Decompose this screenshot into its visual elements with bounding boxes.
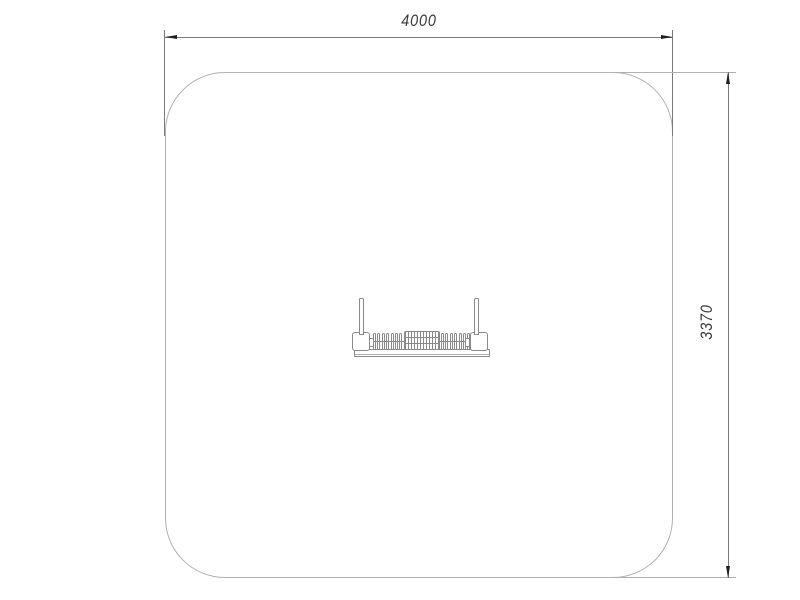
equipment-plan-view (352, 296, 492, 358)
extension-line-right (672, 30, 673, 136)
spring-coil (391, 333, 394, 349)
spring-coil (459, 333, 462, 349)
dimension-arrow-right-icon (661, 35, 673, 39)
extension-line-bottom (612, 577, 736, 578)
extension-line-left (164, 30, 165, 136)
equipment-post-right (474, 298, 479, 335)
equipment-ribbed-seat (404, 331, 440, 349)
spring-coil (450, 333, 453, 349)
height-dimension-label: 3370 (696, 292, 718, 352)
seat-cross-line (405, 337, 439, 338)
width-dimension-line (165, 37, 673, 38)
spring-coil (382, 333, 385, 349)
equipment-beam-inner-line (355, 354, 489, 355)
spring-coil (395, 333, 398, 349)
spring-coil (454, 333, 457, 349)
technical-drawing-canvas: 4000 3370 (0, 0, 800, 600)
spring-coil (377, 333, 380, 349)
seat-cross-line (405, 343, 439, 344)
spring-coil (386, 333, 389, 349)
dimension-arrow-down-icon (726, 566, 730, 578)
spring-coil (399, 333, 402, 349)
equipment-post-left (359, 298, 364, 335)
extension-line-top (612, 72, 736, 73)
spring-coil (445, 333, 448, 349)
equipment-end-block-right (470, 332, 488, 351)
equipment-beam (354, 349, 490, 357)
spring-coil-group-left (373, 333, 404, 349)
dimension-arrow-left-icon (165, 35, 177, 39)
width-dimension-label: 4000 (383, 11, 454, 31)
spring-coil (441, 333, 444, 349)
dimension-arrow-up-icon (726, 72, 730, 84)
height-dimension-line (728, 72, 729, 578)
